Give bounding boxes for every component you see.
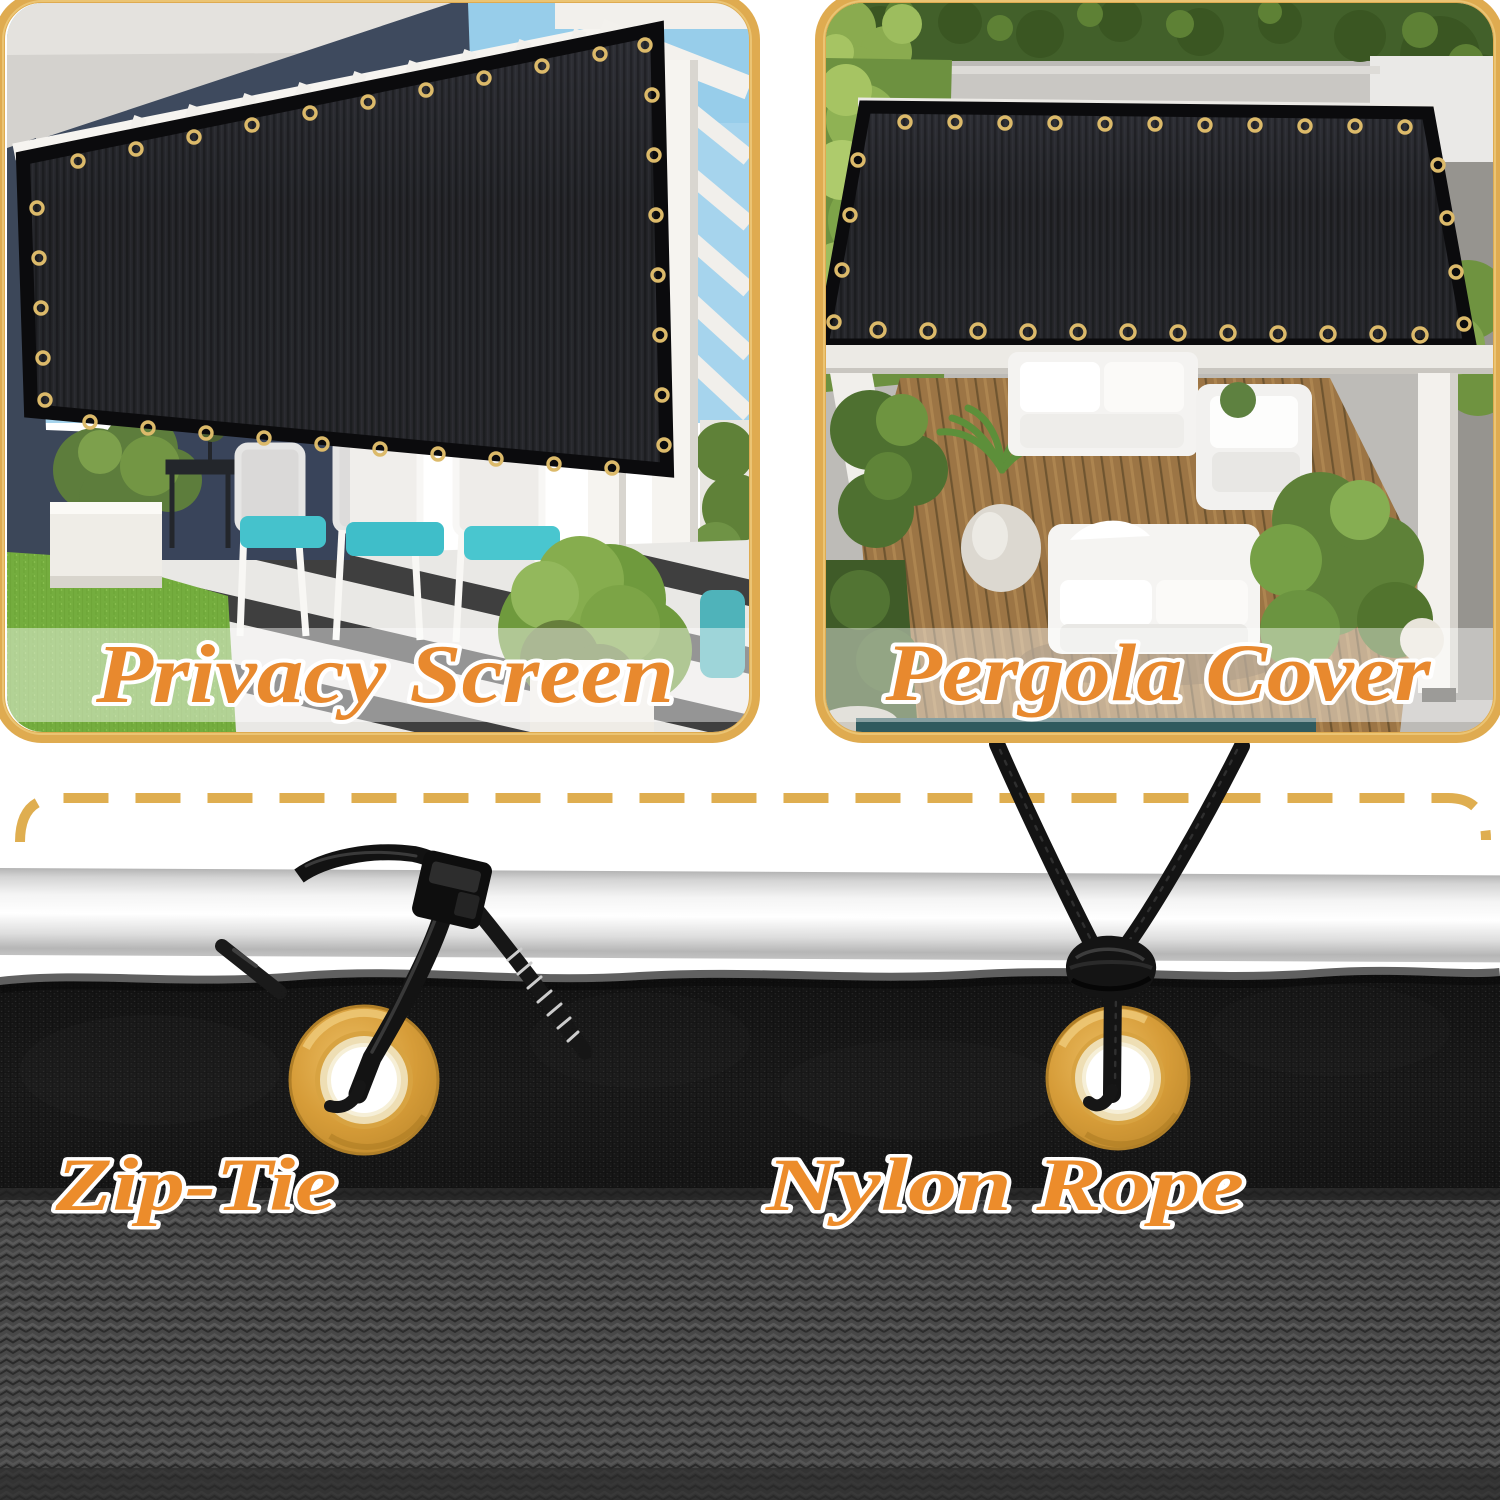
svg-text:Nylon Rope: Nylon Rope bbox=[765, 1144, 1244, 1227]
svg-text:Zip-Tie: Zip-Tie bbox=[54, 1144, 336, 1227]
svg-text:Privacy Screen: Privacy Screen bbox=[95, 628, 674, 721]
svg-text:Pergola Cover: Pergola Cover bbox=[884, 627, 1431, 718]
